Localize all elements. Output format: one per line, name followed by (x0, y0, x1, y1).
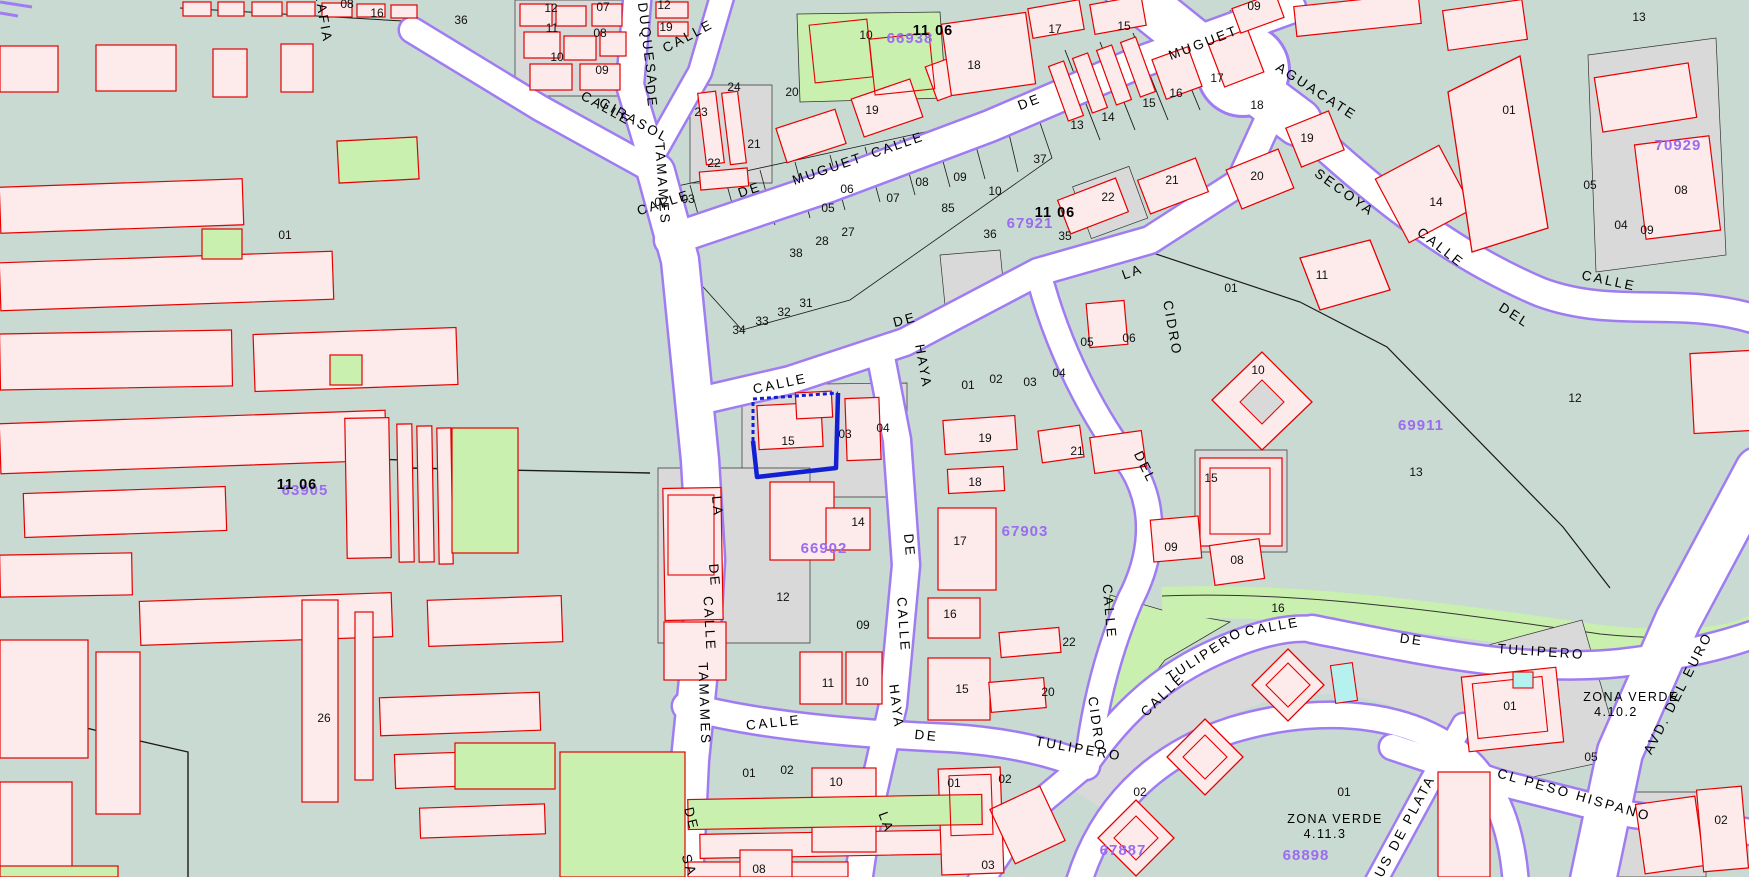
parcel-number-label: 27 (841, 225, 855, 239)
cadastral-block-code: 67887 (1100, 842, 1147, 859)
parcel-number-label: 21 (1165, 173, 1179, 187)
parcel-number-label: 01 (1224, 281, 1238, 295)
parcel-number-label: 22 (1101, 190, 1115, 204)
parcel-number-label: 32 (777, 305, 791, 319)
parcel-number-label: 02 (654, 195, 668, 209)
parcel-number-label: 07 (886, 191, 900, 205)
street-name-label: DE (706, 563, 723, 588)
parcel-number-label: 15 (1117, 19, 1131, 33)
parcel-number-label: 03 (681, 192, 695, 206)
zona-verde-label: 4.10.2 (1594, 705, 1638, 719)
parcel-number-label: 17 (953, 534, 967, 548)
parcel-number-label: 19 (659, 20, 673, 34)
parcel-number-label: 14 (851, 515, 865, 529)
parcel-number-label: 09 (953, 170, 967, 184)
cadastral-block-code: 70929 (1655, 137, 1702, 154)
street-name-label: DE (914, 727, 939, 744)
parcel-number-label: 04 (1052, 366, 1066, 380)
parcel-number-label: 14 (1429, 195, 1443, 209)
parcel-number-label: 08 (752, 862, 766, 876)
parcel-number-label: 31 (799, 296, 813, 310)
parcel-number-label: 02 (989, 372, 1003, 386)
parcel-number-label: 01 (961, 378, 975, 392)
street-name-label: DE (901, 533, 918, 558)
parcel-number-label: 03 (838, 427, 852, 441)
parcel-number-label: 08 (593, 26, 607, 40)
parcel-number-label: 11 (822, 676, 835, 690)
cadastral-block-code: 67903 (1002, 523, 1049, 540)
parcel-number-label: 38 (789, 246, 803, 260)
parcel-number-label: 35 (1058, 229, 1072, 243)
parcel-number-label: 13 (1409, 465, 1423, 479)
parcel-number-label: 05 (821, 201, 835, 215)
parcel-number-label: 17 (1048, 22, 1062, 36)
street-name-label: CALLE (701, 596, 719, 652)
parcel-number-label: 18 (968, 475, 982, 489)
parcel-number-label: 36 (983, 227, 997, 241)
parcel-number-label: 01 (742, 766, 756, 780)
map-viewport[interactable]: RAFIACALLEDUQUESADECALLEGIRASOLTAMAMESCA… (0, 0, 1749, 877)
parcel-number-label: 11 (546, 21, 559, 35)
parcel-number-label: 08 (915, 175, 929, 189)
parcel-number-label: 33 (755, 314, 769, 328)
parcel-number-label: 08 (340, 0, 354, 11)
parcel-number-label: 16 (1169, 86, 1183, 100)
parcel-number-label: 08 (1230, 553, 1244, 567)
cadastral-block-code: 69911 (1398, 417, 1444, 434)
cadastral-block-code: 66902 (801, 540, 848, 557)
street-name-label: LA (709, 495, 726, 518)
parcel-number-label: 05 (1583, 178, 1597, 192)
parcel-number-label: 04 (876, 421, 890, 435)
parcel-number-label: 09 (1164, 540, 1178, 554)
parcel-number-label: 10 (1251, 363, 1265, 377)
zona-verde-label: 4.11.3 (1304, 827, 1347, 841)
parcel-number-label: 14 (1101, 110, 1115, 124)
parcel-number-label: 26 (317, 711, 331, 725)
parcel-number-label: 01 (1503, 699, 1517, 713)
parcel-number-label: 12 (544, 1, 558, 15)
parcel-number-label: 05 (1080, 335, 1094, 349)
sector-code-label: 11 06 (913, 23, 954, 39)
parcel-number-label: 18 (1250, 98, 1264, 112)
parcel-number-label: 02 (780, 763, 794, 777)
parcel-number-label: 09 (1247, 0, 1261, 13)
parcel-number-label: 28 (815, 234, 829, 248)
parcel-number-label: 01 (1502, 103, 1516, 117)
sector-code-label: 11 06 (277, 477, 318, 493)
parcel-number-label: 10 (550, 50, 564, 64)
parcel-number-label: 34 (732, 323, 746, 337)
parcel-number-label: 85 (941, 201, 955, 215)
parcel-number-label: 20 (785, 85, 799, 99)
parcel-number-label: 12 (776, 590, 790, 604)
cadastral-map[interactable]: RAFIACALLEDUQUESADECALLEGIRASOLTAMAMESCA… (0, 0, 1749, 877)
parcel-number-label: 20 (1041, 685, 1055, 699)
parcel-number-label: 22 (707, 156, 721, 170)
parcel-number-label: 10 (829, 775, 843, 789)
parcel-number-label: 04 (1614, 218, 1628, 232)
zona-verde-label: ZONA VERDE (1287, 812, 1383, 826)
parcel-number-label: 21 (1070, 444, 1084, 458)
parcel-number-label: 12 (657, 0, 671, 12)
zona-verde-label: ZONA VERDE (1583, 690, 1679, 704)
parcel-number-label: 01 (1337, 785, 1351, 799)
parcel-number-label: 10 (988, 184, 1002, 198)
parcel-number-label: 13 (1070, 118, 1084, 132)
parcel-number-label: 09 (856, 618, 870, 632)
parcel-number-label: 20 (1250, 169, 1264, 183)
parcel-number-label: 10 (859, 28, 873, 42)
parcel-number-label: 15 (955, 682, 969, 696)
parcel-number-label: 16 (370, 6, 384, 20)
parcel-number-label: 02 (998, 772, 1012, 786)
sector-code-label: 11 06 (1035, 205, 1076, 221)
parcel-number-label: 17 (1210, 71, 1224, 85)
parcel-number-label: 16 (1271, 601, 1285, 615)
street-name-label: DE (643, 84, 661, 109)
parcel-number-label: 22 (1062, 635, 1076, 649)
parcel-number-label: 11 (1316, 268, 1329, 282)
cadastral-block-code: 68898 (1283, 847, 1330, 864)
street-name-label: TAMAMES (696, 662, 714, 746)
parcel-number-label: 09 (595, 63, 609, 77)
parcel-number-label: 13 (1632, 10, 1646, 24)
parcel-number-label: 06 (1122, 331, 1136, 345)
parcel-number-label: 10 (855, 675, 869, 689)
parcel-number-label: 21 (747, 137, 761, 151)
parcel-number-label: 09 (1640, 223, 1654, 237)
parcel-number-label: 01 (278, 228, 292, 242)
parcel-number-label: 19 (978, 431, 992, 445)
parcel-number-label: 15 (1142, 96, 1156, 110)
parcel-number-label: 37 (1033, 152, 1047, 166)
parcel-number-label: 02 (1714, 813, 1728, 827)
parcel-number-label: 16 (943, 607, 957, 621)
parcel-number-label: 03 (1023, 375, 1037, 389)
parcel-number-label: 18 (967, 58, 981, 72)
parcel-number-label: 02 (1133, 785, 1147, 799)
parcel-number-label: 15 (1204, 471, 1218, 485)
parcel-number-label: 23 (694, 105, 708, 119)
parcel-number-label: 24 (727, 80, 741, 94)
parcel-number-label: 01 (947, 776, 961, 790)
parcel-number-label: 05 (1584, 750, 1598, 764)
parcel-number-label: 07 (596, 0, 610, 14)
parcel-number-label: 08 (1674, 183, 1688, 197)
parcel-number-label: 19 (1300, 131, 1314, 145)
parcel-number-label: 15 (781, 434, 795, 448)
parcel-number-label: 19 (865, 103, 879, 117)
parcel-number-label: 06 (840, 182, 854, 196)
parcel-number-label: 03 (981, 858, 995, 872)
parcel-number-label: 36 (454, 13, 468, 27)
parcel-number-label: 12 (1568, 391, 1582, 405)
